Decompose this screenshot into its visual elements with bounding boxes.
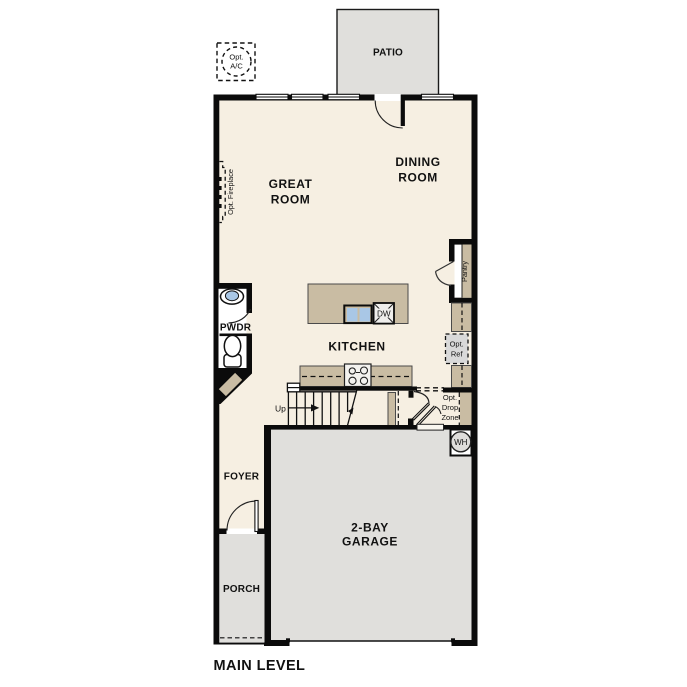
svg-text:WH: WH: [454, 438, 468, 447]
svg-text:ROOM: ROOM: [398, 171, 438, 185]
svg-text:2-BAY: 2-BAY: [351, 521, 389, 535]
svg-text:Opt. Fireplace: Opt. Fireplace: [226, 169, 235, 215]
svg-text:Drop: Drop: [442, 403, 458, 412]
svg-text:Ref: Ref: [451, 350, 464, 359]
svg-text:KITCHEN: KITCHEN: [328, 340, 385, 354]
svg-text:PATIO: PATIO: [373, 48, 403, 59]
svg-text:Opt.: Opt.: [450, 340, 464, 349]
svg-text:Zone: Zone: [441, 413, 458, 422]
svg-text:GREAT: GREAT: [269, 177, 313, 191]
svg-text:MAIN LEVEL: MAIN LEVEL: [214, 658, 306, 674]
svg-text:FOYER: FOYER: [224, 472, 260, 483]
svg-text:PWDR: PWDR: [220, 323, 252, 334]
svg-text:ROOM: ROOM: [271, 193, 311, 207]
svg-text:Up: Up: [275, 403, 286, 413]
svg-text:DINING: DINING: [395, 155, 440, 169]
svg-text:A/C: A/C: [230, 62, 243, 71]
svg-text:GARAGE: GARAGE: [342, 535, 398, 549]
svg-text:PORCH: PORCH: [223, 584, 260, 595]
svg-text:Opt.: Opt.: [229, 53, 243, 62]
svg-text:Opt.: Opt.: [443, 393, 457, 402]
svg-text:DW: DW: [377, 309, 391, 318]
svg-text:Pantry: Pantry: [460, 261, 469, 282]
